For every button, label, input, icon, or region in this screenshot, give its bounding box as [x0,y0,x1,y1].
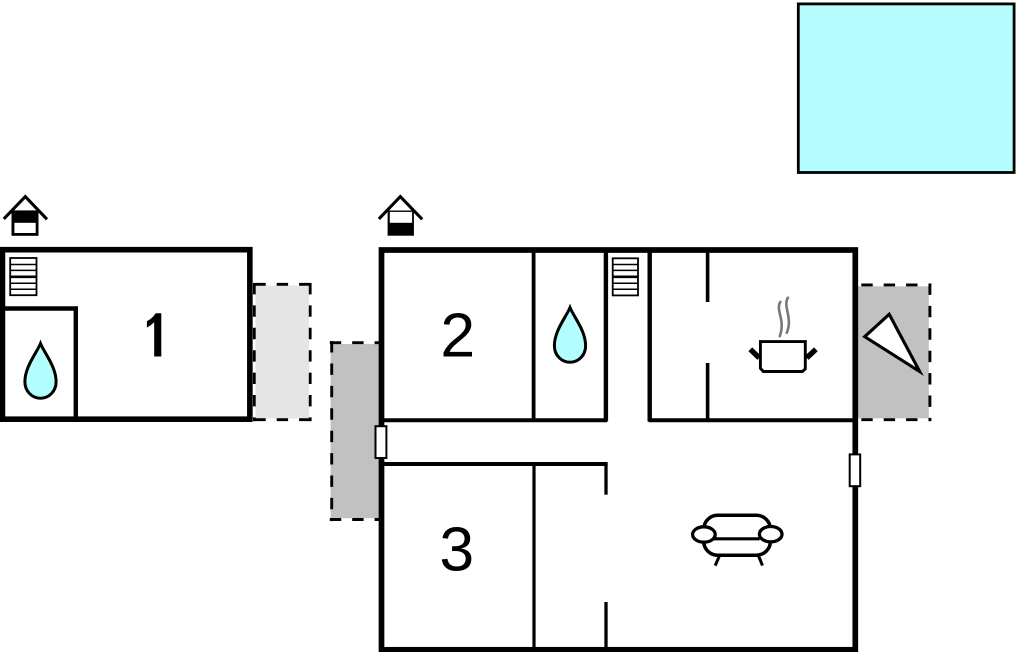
svg-text:3: 3 [439,515,474,585]
svg-text:2: 2 [440,300,475,370]
